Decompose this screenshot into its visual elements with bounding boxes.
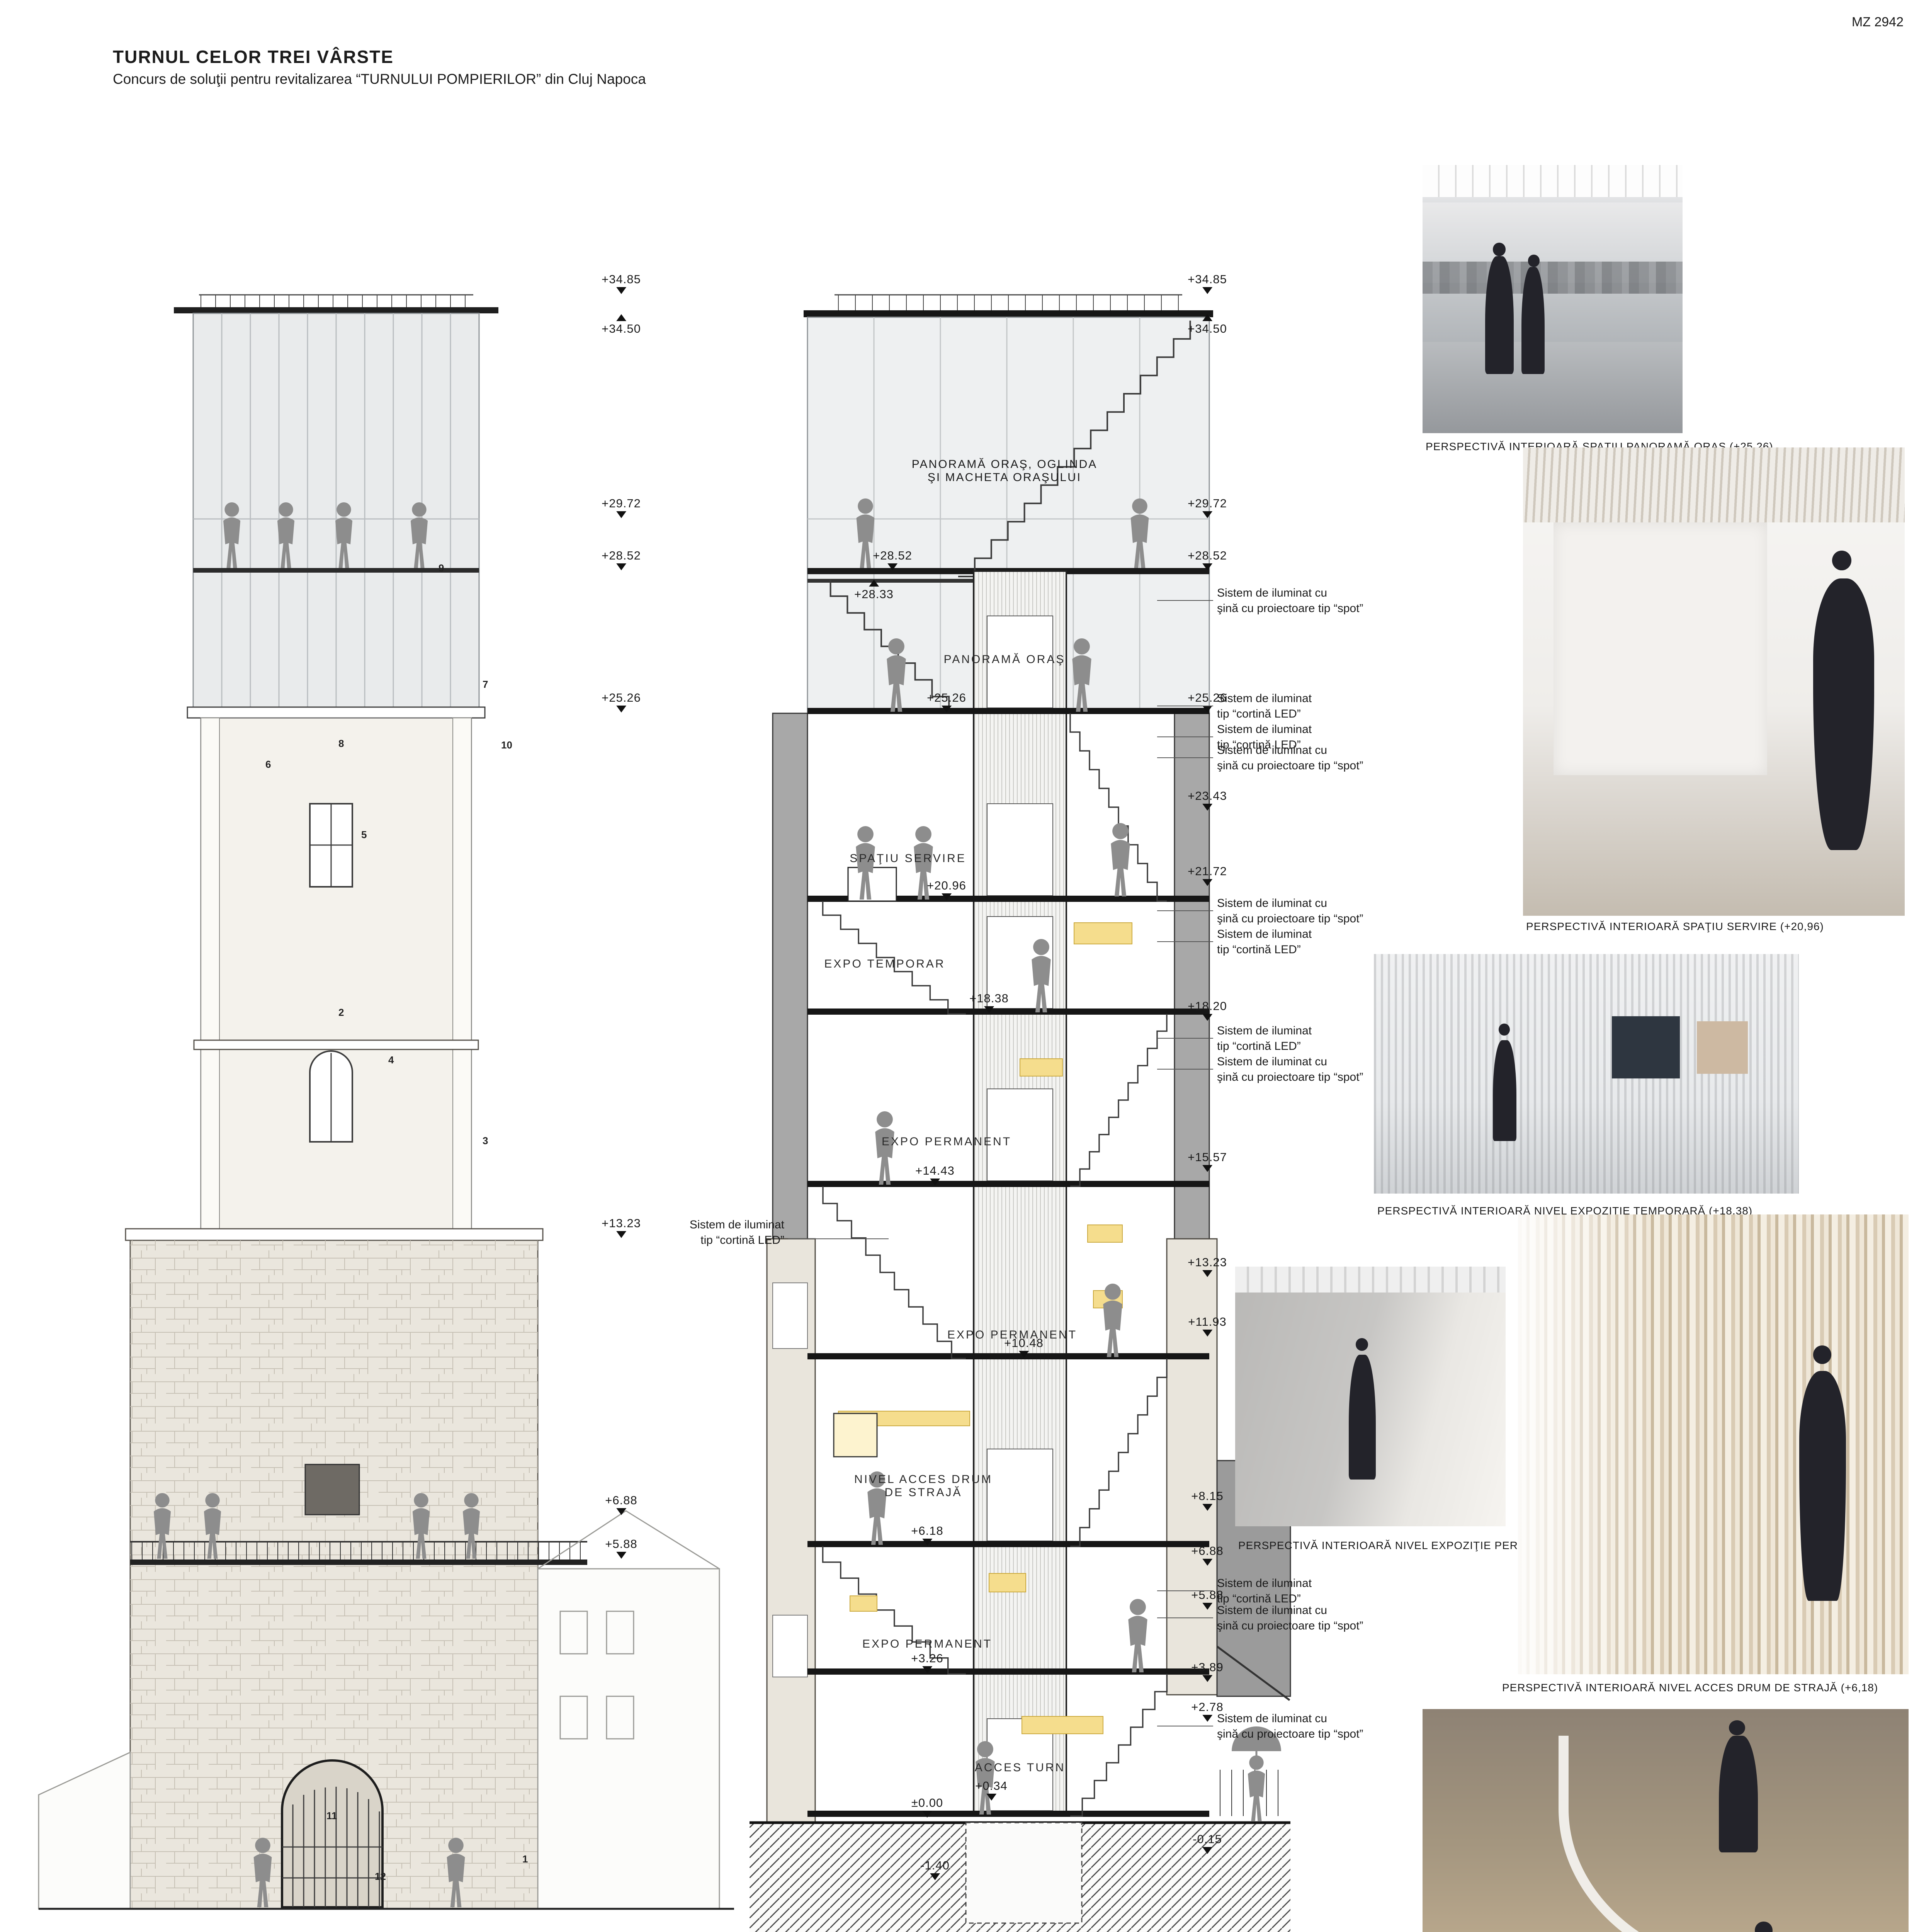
section-level-left: ±0.00 [911,1796,943,1823]
section-level-left: +6.18 [911,1524,943,1551]
section-level-right: +15.57 [1188,1150,1227,1177]
leader-line [1157,1069,1213,1070]
section-level-left: -1.40 [920,1859,950,1885]
leader-line [1157,600,1213,601]
callout-lighting: Sistem de iluminat cu şină cu proiectoar… [1217,585,1395,616]
leader-line [1157,1590,1213,1591]
leader-line [1157,1726,1213,1726]
facade-window-upper [310,804,352,887]
foundation-outline [966,1823,1082,1923]
section-room-label: EXPO TEMPORAR [824,957,945,971]
section-level-right: +34.85 [1188,272,1227,299]
facade-level: +5.88 [605,1537,637,1564]
board-header: TURNUL CELOR TREI VÂRSTE Concurs de solu… [113,46,646,87]
page-title: TURNUL CELOR TREI VÂRSTE [113,46,646,67]
section-level-left: +0.34 [975,1779,1007,1806]
facade-keynote-tag: 5 [361,829,367,841]
person-on-stair [1719,1736,1758,1852]
floor [1423,342,1683,433]
white-wall [1554,522,1767,775]
section-level-right: +6.88 [1191,1544,1223,1571]
facade-level: +13.23 [602,1216,641,1243]
person-silhouette [1485,256,1514,374]
facade-keynote-tag: 3 [483,1135,488,1147]
section-room-label: EXPO PERMANENT [882,1135,1011,1148]
page-subtitle: Concurs de soluţii pentru revitalizarea … [113,71,646,87]
section-level-left: +25.26 [927,691,966,718]
section-room-label: ACCES TURN [975,1761,1065,1774]
section-room-label: NIVEL ACCES DRUM DE STRAJĂ [854,1473,993,1499]
facade-keynote-tag: 4 [388,1054,394,1066]
visitor-silhouette [1356,1338,1368,1351]
facade-keynote-tag: 9 [439,562,444,574]
section-level-right: +8.15 [1191,1489,1223,1516]
facade-roof-railing [199,295,473,307]
visitor-silhouette [1493,1040,1516,1141]
facade-keynote-tag: 6 [265,759,271,770]
section-level-left: +28.52 [873,549,912,575]
window-light [1518,1214,1655,1674]
artwork-beige [1697,1021,1748,1074]
section-room-label: EXPO PERMANENT [947,1328,1077,1342]
section-wall-stone-right [1167,1239,1217,1695]
section-level-right: +11.93 [1188,1315,1226,1342]
leader-line [1157,757,1213,758]
leader-line [788,1238,889,1239]
competition-board: TURNUL CELOR TREI VÂRSTE Concurs de solu… [0,0,1919,1932]
facade-gate [282,1760,382,1907]
facade-keynote-tag: 11 [326,1810,337,1822]
artwork-dark [1612,1016,1680,1078]
callout-lighting: Sistem de iluminat tip “cortină LED” [1217,1023,1395,1054]
render-acces-turn [1423,1709,1909,1932]
callout-lighting: Sistem de iluminat cu şină cu proiectoar… [1217,896,1395,927]
section-level-left: +3.26 [911,1651,943,1678]
section-level-right: -0.15 [1193,1832,1222,1859]
ceiling-grid [1235,1267,1506,1293]
callout-lighting: Sistem de iluminat tip “cortină LED” [1217,927,1395,957]
city-skyline [1423,262,1683,294]
leader-line [1157,1617,1213,1618]
facade-keynote-tag: 7 [483,679,488,690]
render-spatiu-servire [1523,447,1905,916]
facade-window-arched [310,1051,352,1142]
callout-led-left: Sistem de iluminat tip “cortină LED” [672,1217,784,1248]
facade-level: +34.85 [602,272,641,299]
section-level-right: +13.23 [1188,1255,1227,1282]
render-drum-de-straja [1518,1214,1909,1674]
section-top-note: PANORAMĂ ORAŞ, OGLINDA ŞI MACHETA ORAŞUL… [900,458,1109,484]
leader-line [1157,941,1213,942]
entry-code: MZ 2942 [1852,15,1904,30]
leader-line [1157,706,1213,706]
callout-lighting: Sistem de iluminat tip “cortină LED” [1217,1576,1395,1607]
render-caption: PERSPECTIVĂ INTERIOARĂ SPAŢIU SERVIRE (+… [1526,920,1824,933]
section-level-right: +23.43 [1188,789,1227,816]
facade-keynote-tag: 12 [375,1871,386,1883]
facade-level: +25.26 [602,691,641,718]
facade-keynote-tag: 10 [501,739,512,751]
section-level-left: +18.38 [969,992,1009,1018]
render-caption: PERSPECTIVĂ INTERIOARĂ NIVEL ACCES DRUM … [1502,1682,1878,1694]
facade-plaster-body [201,718,471,1239]
slat-walls [1374,954,1799,1194]
ceiling-grid [1423,165,1683,197]
facade-stone-window [305,1464,359,1515]
render-panorama-oras [1423,165,1683,433]
section-level-right: +18.20 [1188,999,1227,1026]
section-room-label: EXPO PERMANENT [862,1638,992,1651]
section-level-right: +34.50 [1188,309,1227,336]
section-level-left: +28.33 [854,575,894,601]
woman-in-black [1813,578,1874,850]
expo-desk [834,1413,877,1457]
section-level-right: +29.72 [1188,497,1227,523]
woman-in-black [1832,551,1851,570]
render-expo-permanenta [1235,1267,1506,1526]
skylight-grid [1523,447,1905,522]
section-level-left: +20.96 [927,879,966,905]
leader-line [1157,1038,1213,1039]
facade-level: +6.88 [605,1493,637,1520]
callout-lighting: Sistem de iluminat cu şină cu proiectoar… [1217,743,1395,774]
leader-line [1157,910,1213,911]
visitor-silhouette [1499,1024,1510,1036]
facade-level: +29.72 [602,497,641,523]
visitor-silhouette [1349,1355,1376,1480]
section-level-right: +21.72 [1188,864,1227,891]
section-level-right: +28.52 [1188,549,1227,575]
facade-keynote-tag: 1 [522,1853,528,1865]
person-silhouette [1521,267,1545,374]
facade-level: +28.52 [602,549,641,575]
leader-line [1157,736,1213,737]
section-level-left: +14.43 [915,1164,955,1190]
woman-silhouette [1799,1371,1846,1601]
woman-silhouette [1813,1345,1831,1364]
facade-level: +34.50 [602,309,641,336]
spiral-stair [1559,1736,1851,1932]
section-room-label: PANORAMĂ ORAŞ [944,653,1066,666]
person-silhouette [1528,255,1540,267]
facade-keynote-tag: 2 [338,1007,344,1019]
render-expo-temporara [1374,954,1799,1194]
callout-lighting: Sistem de iluminat cu şină cu proiectoar… [1217,1054,1395,1085]
callout-lighting: Sistem de iluminat tip “cortină LED” [1217,691,1395,722]
section-room-label: SPAŢIU SERVIRE [850,852,966,865]
section-wall-concrete-left [773,713,807,1239]
facade-drawing [39,286,734,1932]
section-elevator-shaft [974,571,1066,1816]
person-on-stair [1729,1720,1746,1735]
section-level-right: +3.89 [1191,1660,1223,1687]
facade-keynote-tag: 8 [338,738,344,750]
callout-lighting: Sistem de iluminat cu şină cu proiectoar… [1217,1603,1395,1634]
callout-lighting: Sistem de iluminat cu şină cu proiectoar… [1217,1711,1395,1742]
person-silhouette [1493,243,1506,256]
